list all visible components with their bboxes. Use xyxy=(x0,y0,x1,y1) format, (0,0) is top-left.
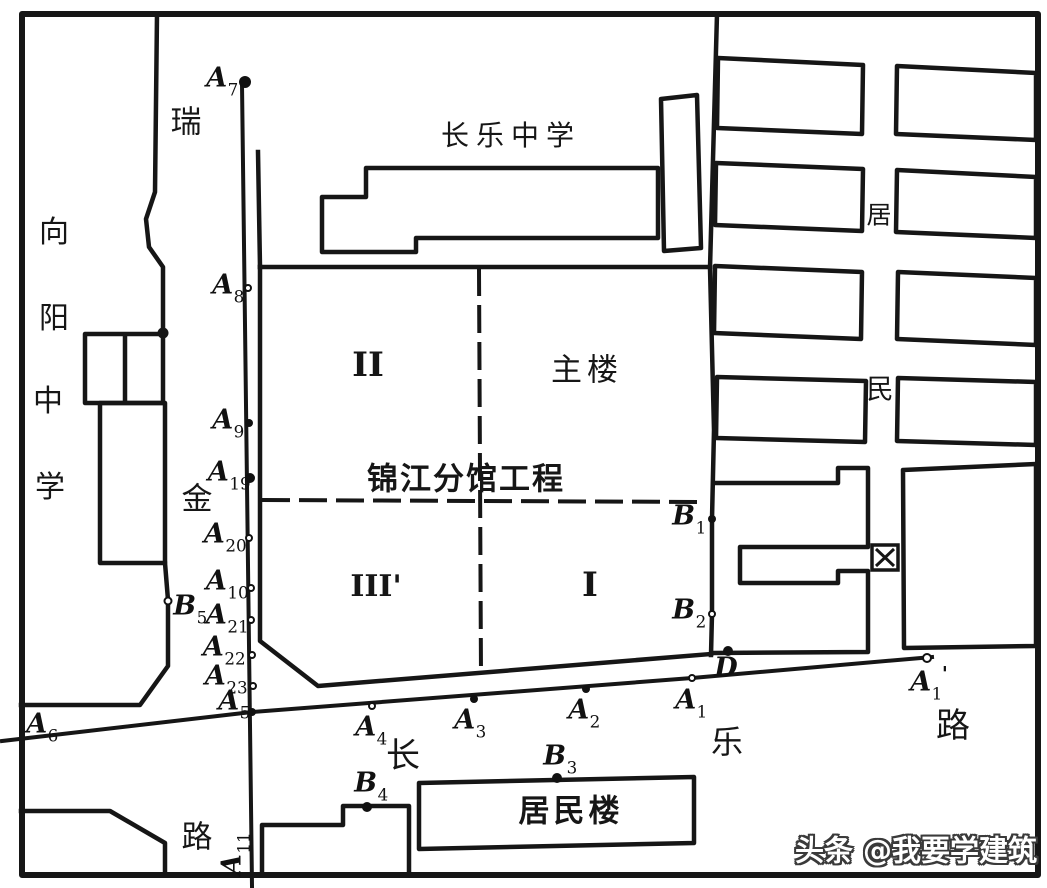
point-label-A5: A5 xyxy=(218,687,250,718)
point-dot-B5 xyxy=(164,597,173,606)
juminlou-building-label: 居民楼 xyxy=(519,797,624,828)
point-label-A8: A8 xyxy=(212,271,244,302)
xiangyang-boundary-lower xyxy=(21,563,168,705)
point-label-A19: A19 xyxy=(208,458,250,489)
residential-block-r2-left xyxy=(715,163,863,231)
point-label-A10: A10 xyxy=(206,567,248,598)
point-label-A11: A11 xyxy=(218,833,249,875)
point-label-A1: A1 xyxy=(675,686,707,717)
point-label-A4: A4 xyxy=(355,713,387,744)
point-dot-B2 xyxy=(708,610,716,618)
partition-dash-horizontal xyxy=(264,500,706,502)
site-plan: 向阳中学瑞金路长乐中学主楼锦江分馆工程IIIII'I居民楼长乐路居民头条 @我要… xyxy=(0,0,1047,888)
point-label-A9: A9 xyxy=(212,406,244,437)
point-dot-A2 xyxy=(582,685,590,693)
point-label-B5: B5 xyxy=(173,592,206,623)
boundary-junction-dot xyxy=(158,328,169,339)
residential-block-r1-left xyxy=(717,58,863,134)
point-dot-A22 xyxy=(248,651,256,659)
residential-block-r1-right xyxy=(896,66,1036,140)
jumin-area-char-ju: 居 xyxy=(866,203,891,228)
residential-block-r2-right xyxy=(896,170,1036,238)
qu-district-box xyxy=(872,545,898,570)
point-label-A21: A21 xyxy=(206,601,248,632)
project-name-label: 锦江分馆工程 xyxy=(367,465,565,496)
main-building-label: 主楼 xyxy=(551,356,623,387)
residential-block-r3-left xyxy=(714,266,862,339)
changle-road-char-le: 乐 xyxy=(711,726,743,758)
xiangyang-school-char-zhong: 中 xyxy=(33,387,63,417)
point-dot-B1 xyxy=(708,515,716,523)
point-dot-A8 xyxy=(244,284,252,292)
point-dot-A1 xyxy=(688,674,696,682)
xiangyang-boundary-upper xyxy=(146,14,163,334)
zone-i-label: I xyxy=(582,568,598,602)
point-label-A3: A3 xyxy=(454,706,486,737)
point-dot-B4 xyxy=(362,802,372,812)
ruijin-road-char-rui: 瑞 xyxy=(171,108,202,139)
point-label-D: D xyxy=(714,655,737,682)
point-dot-A7 xyxy=(239,76,251,88)
point-dot-A23 xyxy=(249,682,257,690)
residential-block-r4-left xyxy=(716,377,866,442)
residential-block-r4-right xyxy=(897,378,1036,445)
changle-school-building xyxy=(322,168,658,252)
point-label-B1: B1 xyxy=(672,502,705,533)
xiangyang-school-char-yang: 阳 xyxy=(39,304,69,334)
changle-road-char-lu: 路 xyxy=(936,709,970,743)
zone-iii-label: III' xyxy=(350,572,401,602)
southwest-building xyxy=(21,811,165,873)
point-label-B2: B2 xyxy=(672,596,705,627)
zone-ii-label: II xyxy=(352,348,384,382)
point-dot-A1-prime xyxy=(922,653,932,663)
notched-building xyxy=(713,468,868,653)
point-label-B3: B3 xyxy=(543,742,576,773)
point-dot-A3 xyxy=(470,695,478,703)
point-dot-A9 xyxy=(245,419,253,427)
jumin-area-char-min: 民 xyxy=(867,377,894,404)
xiangyang-school-char-xue: 学 xyxy=(35,473,65,503)
point-label-A6: A6 xyxy=(26,710,58,741)
changle-school-label: 长乐中学 xyxy=(441,122,581,150)
point-label-A20: A20 xyxy=(204,520,246,551)
point-label-A7: A7 xyxy=(206,64,238,95)
large-square-building xyxy=(903,464,1036,648)
xiangyang-building-lower xyxy=(100,403,165,563)
point-label-A2: A2 xyxy=(568,696,600,727)
watermark: 头条 @我要学建筑 xyxy=(795,837,1037,866)
b4-stepped-building xyxy=(262,806,409,875)
site-west-line xyxy=(258,152,260,267)
tall-building xyxy=(661,95,701,251)
residential-block-r3-right xyxy=(897,272,1036,345)
xiangyang-building-upper xyxy=(85,334,163,403)
xiangyang-school-char-xiang: 向 xyxy=(39,218,69,248)
ruijin-road-char-lu: 路 xyxy=(182,823,213,854)
changle-road-char-chang: 长 xyxy=(386,739,420,773)
point-label-B4: B4 xyxy=(354,769,387,800)
point-dot-A4 xyxy=(368,702,376,710)
point-dot-B3 xyxy=(552,773,562,783)
point-label-A1-prime: A1' xyxy=(910,664,948,699)
